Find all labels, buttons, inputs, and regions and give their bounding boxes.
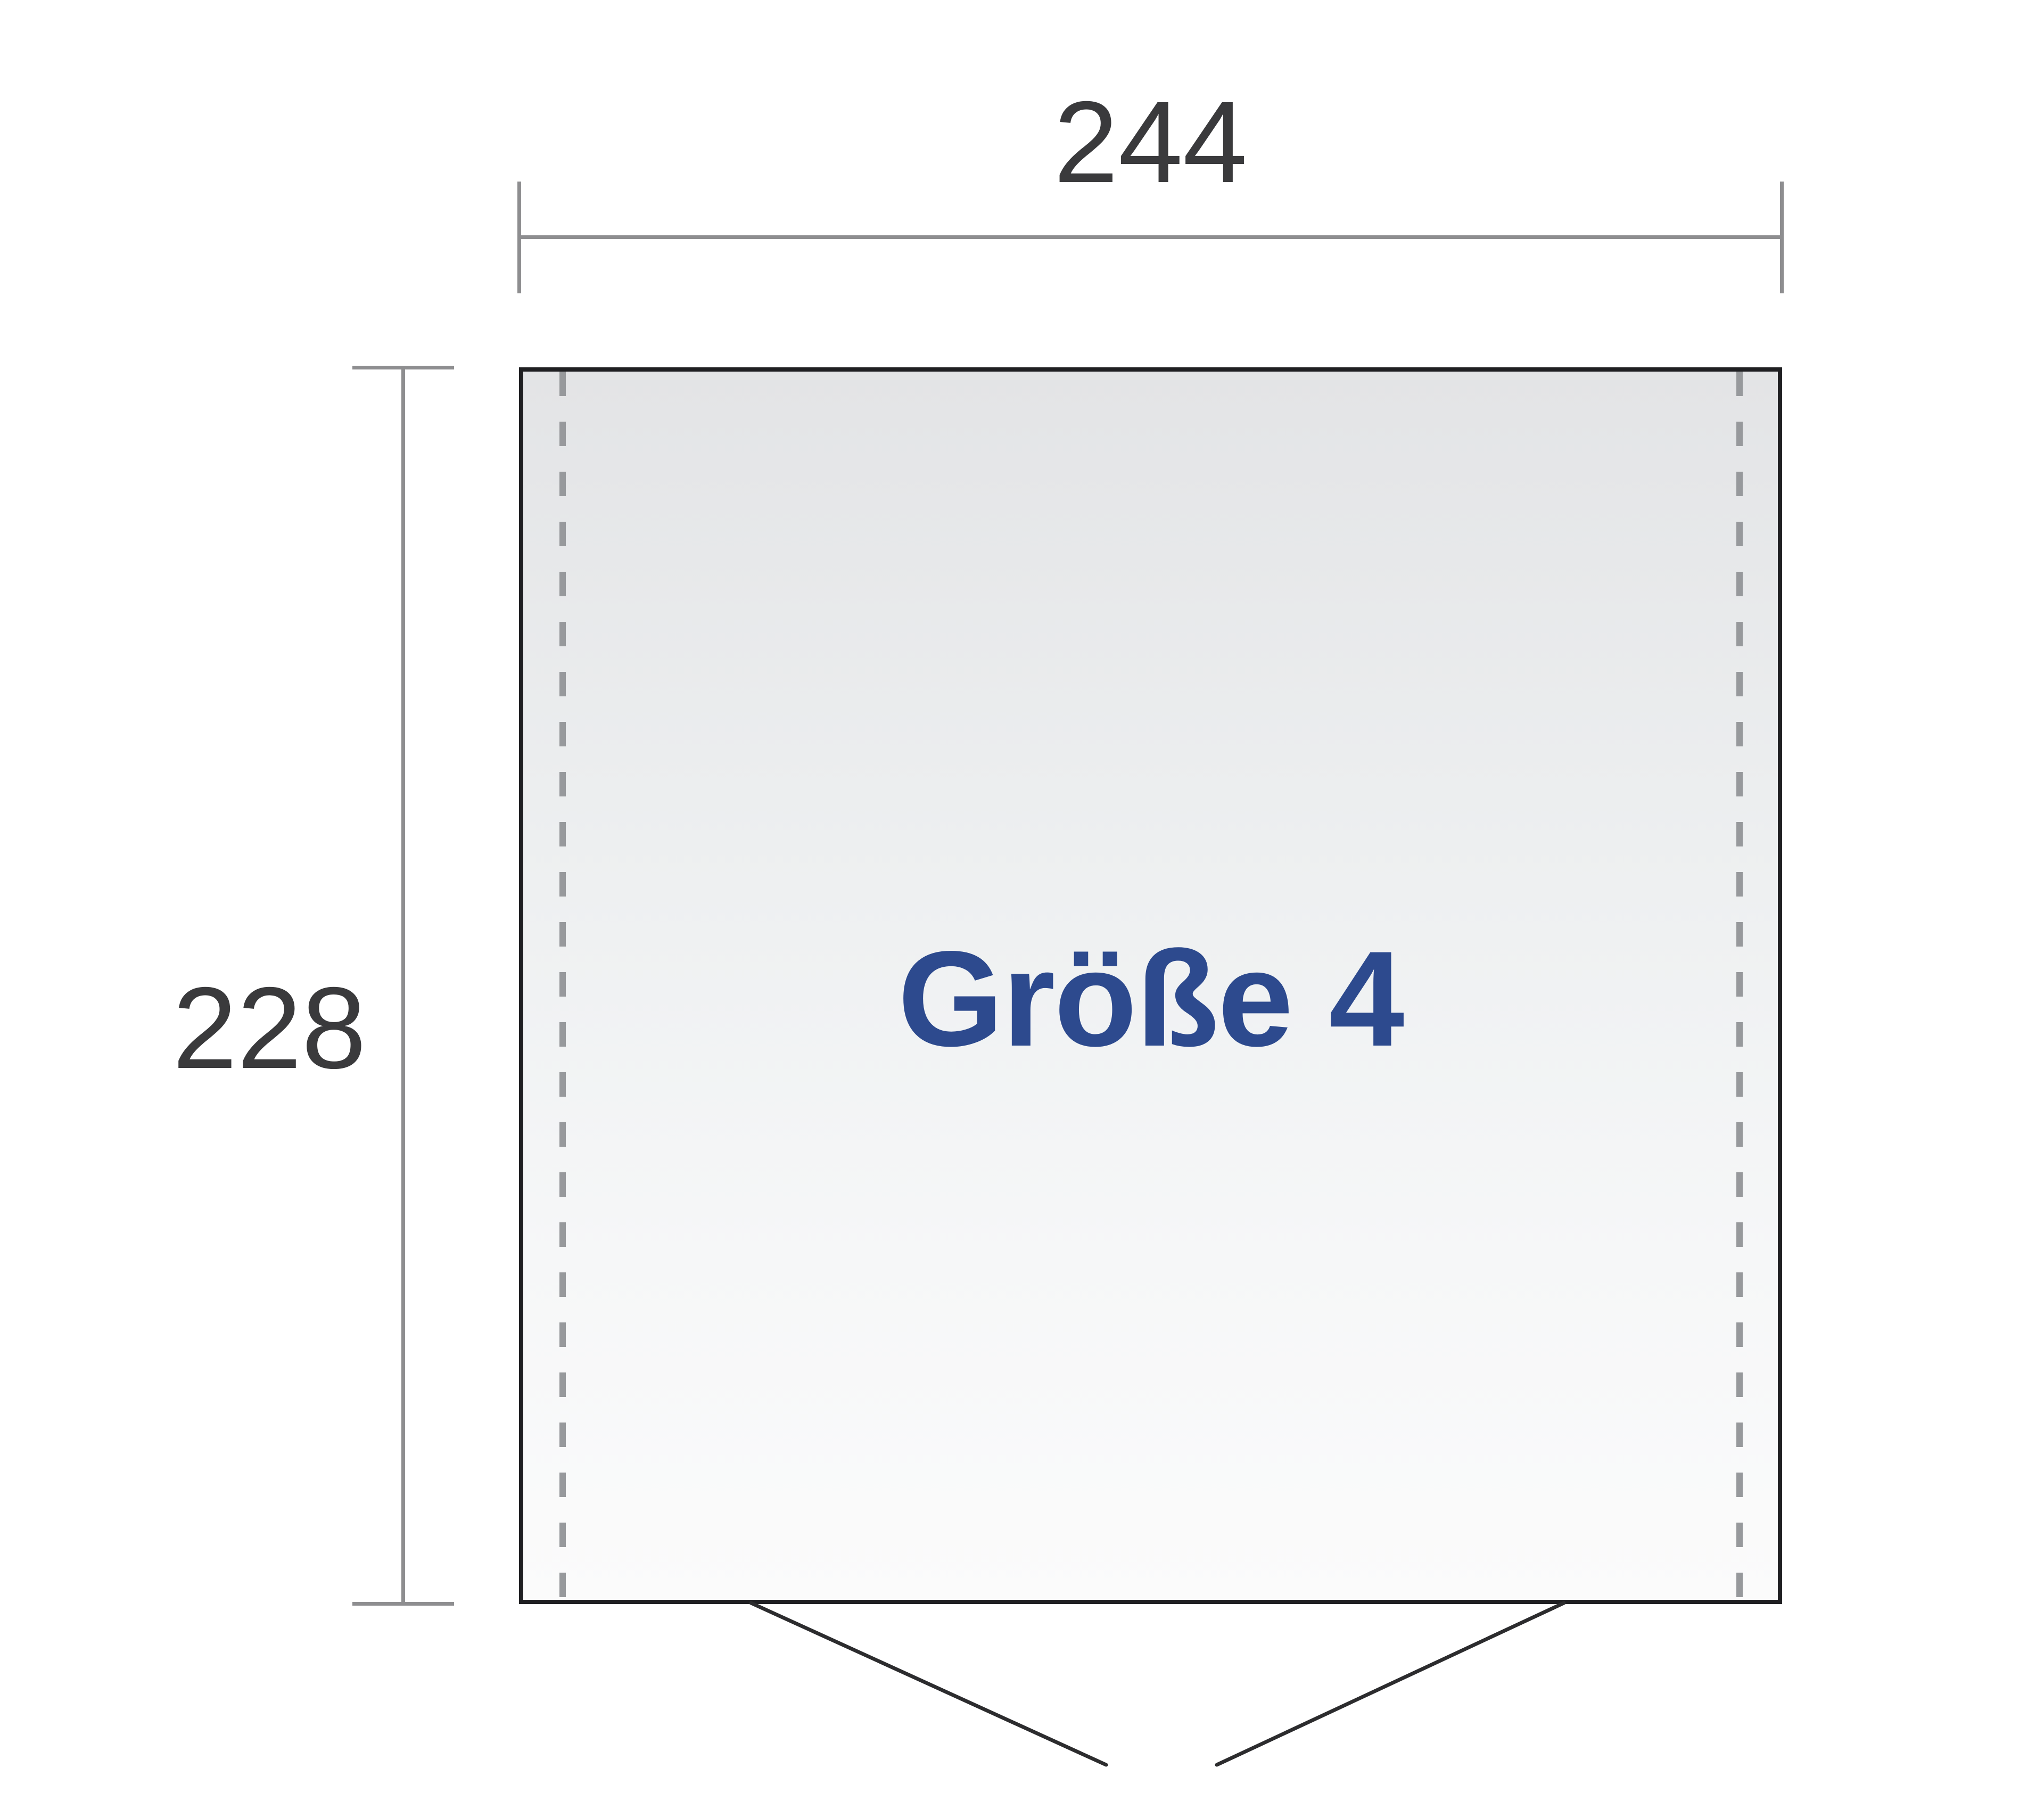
width-dimension-left-tick	[517, 182, 521, 293]
door-swing-right-line	[1217, 1603, 1564, 1765]
door-swing-left-line	[751, 1603, 1106, 1765]
width-dimension-label: 244	[519, 79, 1782, 207]
width-dimension-right-tick	[1780, 182, 1784, 293]
height-dimension-bottom-tick	[352, 1602, 454, 1606]
floor-plan-diagram: 244 228 Größe 4	[0, 0, 2044, 1817]
height-dimension-line	[401, 367, 405, 1604]
width-dimension-line	[519, 235, 1782, 239]
height-dimension-top-tick	[352, 366, 454, 369]
size-label: Größe 4	[523, 921, 1778, 1077]
height-dimension-label: 228	[122, 965, 366, 1092]
floor-plan-outline: Größe 4	[519, 367, 1782, 1604]
